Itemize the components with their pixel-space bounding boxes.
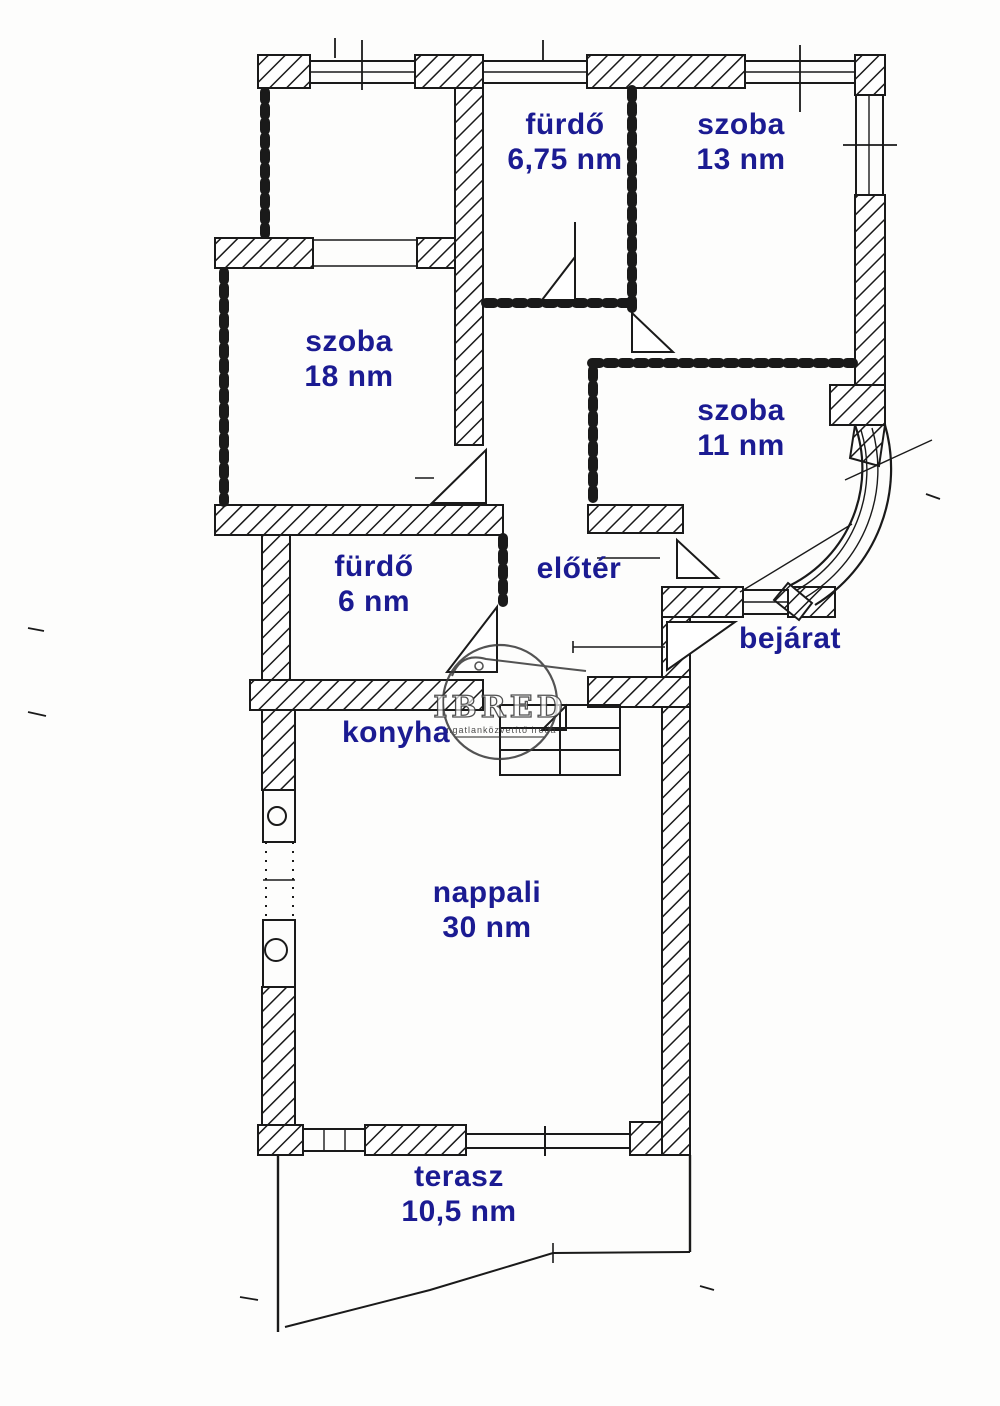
room-label-nappali: nappali 30 nm bbox=[433, 876, 542, 946]
room-label-furdo-6: fürdő 6 nm bbox=[334, 550, 413, 620]
watermark-brand-text: IBRED bbox=[433, 690, 566, 725]
room-label-eloter: előtér bbox=[537, 552, 622, 587]
room-area: 30 nm bbox=[433, 911, 542, 946]
room-name: szoba bbox=[697, 394, 785, 427]
room-name: bejárat bbox=[739, 622, 841, 655]
room-area: 13 nm bbox=[696, 143, 785, 178]
room-name: szoba bbox=[305, 325, 393, 358]
room-label-szoba-11: szoba 11 nm bbox=[697, 394, 785, 464]
room-area: 6,75 nm bbox=[507, 143, 622, 178]
room-area: 10,5 nm bbox=[401, 1195, 516, 1230]
walls-layer bbox=[215, 55, 885, 1155]
room-label-szoba-13: szoba 13 nm bbox=[696, 108, 785, 178]
room-label-bejarat: bejárat bbox=[739, 622, 841, 657]
kitchen-fixtures bbox=[263, 790, 295, 987]
room-name: előtér bbox=[537, 552, 622, 585]
room-area: 6 nm bbox=[334, 585, 413, 620]
room-label-konyha: konyha bbox=[342, 716, 450, 751]
room-area: 18 nm bbox=[304, 360, 393, 395]
room-name: szoba bbox=[697, 108, 785, 141]
room-name: terasz bbox=[414, 1160, 504, 1193]
room-name: fürdő bbox=[334, 550, 413, 583]
watermark-subtext: ingatlanközvetítő iroda bbox=[443, 725, 556, 735]
room-label-terasz: terasz 10,5 nm bbox=[401, 1160, 516, 1230]
room-name: nappali bbox=[433, 876, 542, 909]
room-label-szoba-18: szoba 18 nm bbox=[304, 325, 393, 395]
room-name: konyha bbox=[342, 716, 450, 749]
room-label-furdo-675: fürdő 6,75 nm bbox=[507, 108, 622, 178]
floor-plan-page: IBRED ingatlanközvetítő iroda fürdő 6,75… bbox=[0, 0, 1000, 1406]
room-name: fürdő bbox=[525, 108, 604, 141]
room-area: 11 nm bbox=[697, 429, 785, 464]
